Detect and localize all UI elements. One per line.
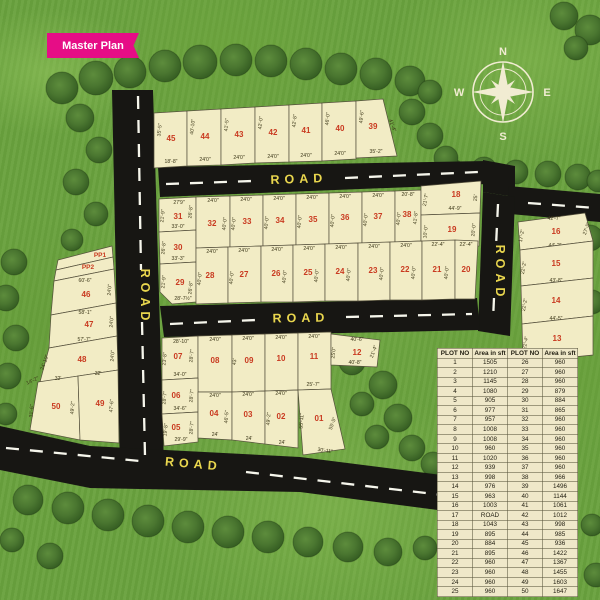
tree <box>564 36 588 60</box>
table-cell: 1012 <box>543 511 578 521</box>
tree <box>369 371 397 399</box>
plot-39: 3949'-6"41'-4"35'-2" <box>356 99 397 158</box>
plot-dimension: 22'-4" <box>432 242 445 248</box>
tree <box>350 392 374 416</box>
plot-number: 04 <box>210 409 219 418</box>
table-cell: 28 <box>508 377 543 387</box>
plot-number: 38 <box>403 210 412 219</box>
table-cell: 1 <box>438 358 473 368</box>
table-cell: 905 <box>473 396 508 406</box>
plot-dimension: 24'0" <box>273 196 284 202</box>
tree <box>535 161 561 187</box>
plot-number: 18 <box>452 190 461 199</box>
road-label: ROAD <box>493 245 507 302</box>
table-cell: 35 <box>508 444 543 454</box>
plot-44: 4440'-10"24'0" <box>187 109 221 166</box>
table-header-row: PLOT NOArea in sftPLOT NOArea in sft <box>438 349 578 359</box>
plot-dimension: 24'0" <box>238 248 249 254</box>
plot-20: 2022'-4" <box>455 240 478 299</box>
table-row: 3114528960 <box>438 377 578 387</box>
plot-43: 4341'-5"24'0" <box>221 107 255 165</box>
plot-dimension: 24'0" <box>368 244 379 250</box>
table-cell: 18 <box>438 520 473 530</box>
plot-31: 3127'9"21'-9"26'-8"33'-0" <box>159 197 196 232</box>
master-plan-canvas: ROADROADROADROADROAD 4535'-5"18'-8"4440'… <box>0 0 600 600</box>
plot-05: 0519'-8"28'-7"29'-9" <box>162 412 198 446</box>
compass-icon: N S W E <box>454 46 551 143</box>
plot-number: 27 <box>240 270 249 279</box>
table-cell: 15 <box>438 491 473 501</box>
table-cell: 43 <box>508 520 543 530</box>
tree <box>399 99 425 125</box>
road-label: ROAD <box>270 171 327 187</box>
table-row: 24960491603 <box>438 577 578 587</box>
plot-number: 33 <box>243 217 252 226</box>
plot-45: 4535'-5"18'-8" <box>154 111 187 168</box>
plot-37: 3724'0"40'-0" <box>362 191 395 243</box>
tree <box>0 285 19 311</box>
plot-dimension: 24'0" <box>308 334 319 340</box>
table-row: 23960481455 <box>438 568 578 578</box>
table-header-cell: PLOT NO <box>508 349 543 359</box>
plot-number: 12 <box>353 348 362 357</box>
plot-number: 41 <box>302 126 311 135</box>
table-cell: 10 <box>438 444 473 454</box>
compass-east-label: E <box>543 87 550 99</box>
tree <box>360 58 392 90</box>
table-row: 8100833960 <box>438 425 578 435</box>
plot-number: 20 <box>462 265 471 274</box>
table-cell: 47 <box>508 558 543 568</box>
road-label: ROAD <box>138 269 152 326</box>
table-cell: 22 <box>438 558 473 568</box>
table-cell: 960 <box>473 577 508 587</box>
plot-number: 45 <box>167 134 176 143</box>
plot-22: 2224'0"40'-0" <box>390 241 422 300</box>
table-cell: 884 <box>473 539 508 549</box>
table-row: 1989544985 <box>438 530 578 540</box>
table-row: 697731865 <box>438 406 578 416</box>
table-cell: 1008 <box>473 434 508 444</box>
plot-number: 42 <box>269 128 278 137</box>
compass-south-label: S <box>499 131 506 143</box>
plot-dimension: 24'0" <box>207 198 218 204</box>
table-cell: 9 <box>438 434 473 444</box>
plot-dimension: 24'0" <box>271 247 282 253</box>
plot-dimension: 24'0" <box>267 154 278 160</box>
table-row: 18104343998 <box>438 520 578 530</box>
table-row: 2088445936 <box>438 539 578 549</box>
plot-49: 4932'47'-6" <box>78 370 119 443</box>
tree <box>0 403 17 425</box>
table-cell: 1003 <box>473 501 508 511</box>
plot-10: 1024'0" <box>265 333 298 391</box>
plot-number: 24 <box>336 267 345 276</box>
table-cell: 960 <box>543 358 578 368</box>
table-cell: 998 <box>473 472 508 482</box>
plot-50: 5032'14'-2"31'-6"49'-2" <box>25 376 80 440</box>
table-row: 1293937960 <box>438 463 578 473</box>
table-cell: 48 <box>508 568 543 578</box>
tree <box>325 53 357 85</box>
table-cell: 960 <box>543 453 578 463</box>
table-cell: 1210 <box>473 368 508 378</box>
table-cell: 1603 <box>543 577 578 587</box>
plot-dimension: 35'-2" <box>370 149 383 155</box>
tree <box>63 169 89 195</box>
table-cell: 960 <box>543 434 578 444</box>
compass-north-label: N <box>499 46 507 58</box>
table-row: 590530884 <box>438 396 578 406</box>
plot-11: 1124'0"25'-7" <box>298 332 331 390</box>
plot-dimension: 33'-0" <box>172 224 185 230</box>
plot-number: 26 <box>272 269 281 278</box>
tree <box>293 527 323 557</box>
tree <box>565 164 591 190</box>
plot-dimension: 29'-9" <box>175 437 188 443</box>
table-cell: 4 <box>438 387 473 397</box>
tree <box>0 528 24 552</box>
table-row: 9100834960 <box>438 434 578 444</box>
table-cell: 29 <box>508 387 543 397</box>
plot-dimension: 20'-8" <box>402 192 415 198</box>
plot-dimension: 33'-3" <box>172 256 185 262</box>
plot-dimension: 30'-11" <box>317 447 333 455</box>
plot-dimension: 24'0" <box>372 193 383 199</box>
table-cell: 20 <box>438 539 473 549</box>
table-row: 4108029879 <box>438 387 578 397</box>
plot-dimension: 43' <box>232 358 239 365</box>
table-cell: 6 <box>438 406 473 416</box>
table-cell: 895 <box>473 549 508 559</box>
table-cell: 30 <box>508 396 543 406</box>
plot-number: 21 <box>433 265 442 274</box>
plot-dimension: 24'0" <box>335 245 346 251</box>
plot-30: 3026'-8"33'-3" <box>159 230 196 264</box>
tree <box>220 44 252 76</box>
plot-number: 39 <box>369 122 378 131</box>
tree <box>399 435 425 461</box>
plot-dimension: 22'-4" <box>460 242 473 248</box>
plot-01: 0155'-11"55'-5"30'-11" <box>298 389 345 455</box>
table-cell: 879 <box>543 387 578 397</box>
plot-28: 2824'0"40'-0" <box>196 247 228 304</box>
table-cell: 865 <box>543 406 578 416</box>
plot-number: 14 <box>552 296 561 305</box>
plot-number: 36 <box>341 213 350 222</box>
tree <box>132 505 164 537</box>
plot-dimension: 44'-9" <box>449 206 462 212</box>
plot-dimension: 24'0" <box>107 284 114 296</box>
tree <box>84 202 108 226</box>
plot-26: 2624'0"40'-0" <box>261 245 293 302</box>
plot-dimension: 40'-8" <box>349 360 362 366</box>
table-cell: 1422 <box>543 549 578 559</box>
plot-dimension: 34'-6" <box>174 406 187 412</box>
table-cell: 1008 <box>473 425 508 435</box>
plot-number: 23 <box>369 266 378 275</box>
plot-dimension: 46'-5" <box>224 410 231 424</box>
tree <box>172 511 204 543</box>
table-cell: 11 <box>438 453 473 463</box>
plot-35: 3524'0"40'-0" <box>296 193 329 245</box>
table-cell: 8 <box>438 425 473 435</box>
table-cell: 960 <box>473 587 508 597</box>
table-cell: 16 <box>438 501 473 511</box>
table-cell: 960 <box>543 463 578 473</box>
table-cell: 34 <box>508 434 543 444</box>
plot-07: 0728'-10"23'-8"28'-7"34'-0" <box>161 336 198 380</box>
table-row: 21895461422 <box>438 549 578 559</box>
table-cell: 1145 <box>473 377 508 387</box>
plot-dimension: 49'-2" <box>70 401 77 415</box>
plot-dimension: 25'-7" <box>307 382 320 388</box>
table-cell: 966 <box>543 472 578 482</box>
table-cell: 3 <box>438 377 473 387</box>
plot-23: 2324'0"40'-0" <box>358 242 390 301</box>
tree <box>183 45 217 79</box>
table-cell: 1496 <box>543 482 578 492</box>
table-cell: 50 <box>508 587 543 597</box>
plot-dimension: 34'-0" <box>174 372 187 378</box>
tree <box>92 499 124 531</box>
table-cell: 985 <box>543 530 578 540</box>
table-cell: 19 <box>438 530 473 540</box>
plot-dimension: 28'-10" <box>173 339 189 345</box>
table-cell: 40 <box>508 491 543 501</box>
plot-number: 10 <box>277 354 286 363</box>
compass-center-dot <box>500 89 506 95</box>
tree <box>290 48 322 80</box>
table-cell: 936 <box>543 539 578 549</box>
tree <box>374 538 402 566</box>
plot-number: 50 <box>52 402 61 411</box>
table-row: 795732960 <box>438 415 578 425</box>
table-cell: 1647 <box>543 587 578 597</box>
plot-06: 0628'-7"28'-7"34'-6" <box>161 378 198 414</box>
plot-dimension: 24'0" <box>242 392 253 398</box>
table-cell: 895 <box>473 530 508 540</box>
tree <box>333 532 363 562</box>
plot-42: 4242'-0"24'0" <box>255 105 289 163</box>
plot-dimension: 24'0" <box>334 151 345 157</box>
table-cell: 960 <box>543 368 578 378</box>
table-row: 14976391496 <box>438 482 578 492</box>
plot-dimension: 42'-7" <box>548 216 561 222</box>
plot-40: 4046'-0"24'0" <box>322 101 356 161</box>
master-plan-title: Master Plan <box>62 40 124 52</box>
table-cell: 957 <box>473 415 508 425</box>
plot-dimension: 25'0" <box>330 347 337 359</box>
plot-dimension: 47'-6" <box>109 399 116 413</box>
plot-area-table-grid: PLOT NOArea in sftPLOT NOArea in sft1150… <box>437 348 578 597</box>
table-cell: 36 <box>508 453 543 463</box>
plot-number: 05 <box>172 423 181 432</box>
tree <box>212 516 244 548</box>
table-cell: 38 <box>508 472 543 482</box>
plot-number: 46 <box>82 290 91 299</box>
table-cell: 46 <box>508 549 543 559</box>
table-cell: 1455 <box>543 568 578 578</box>
tree <box>581 514 600 536</box>
table-cell: 976 <box>473 482 508 492</box>
plot-dimension: 32' <box>95 371 102 377</box>
plot-dimension: 24'0" <box>300 153 311 159</box>
plot-number: 22 <box>401 265 410 274</box>
table-row: 22960471367 <box>438 558 578 568</box>
plot-number: 07 <box>174 352 183 361</box>
tree <box>550 2 578 30</box>
plot-number: 01 <box>315 414 324 423</box>
tree <box>46 72 78 104</box>
table-cell: 960 <box>543 377 578 387</box>
tree <box>252 521 284 553</box>
table-cell: 960 <box>543 415 578 425</box>
plot-number: 40 <box>336 124 345 133</box>
plot-36: 3624'0"40'-0" <box>329 192 362 244</box>
table-cell: 39 <box>508 482 543 492</box>
table-cell: 963 <box>473 491 508 501</box>
plot-number: 25 <box>304 268 313 277</box>
table-cell: 1505 <box>473 358 508 368</box>
tree <box>255 45 287 77</box>
table-row: 15963401144 <box>438 491 578 501</box>
plot-number: 16 <box>552 227 561 236</box>
table-cell: 960 <box>543 444 578 454</box>
table-row: 1150526960 <box>438 358 578 368</box>
plot-dimension: 24' <box>246 436 253 442</box>
plot-dimension: 60'-6" <box>79 278 92 284</box>
table-cell: 32 <box>508 415 543 425</box>
table-cell: 14 <box>438 482 473 492</box>
table-cell: 26 <box>508 358 543 368</box>
table-cell: 7 <box>438 415 473 425</box>
plot-dimension: 24'0" <box>209 393 220 399</box>
plot-dimension: 24'0" <box>339 194 350 200</box>
table-cell: 998 <box>543 520 578 530</box>
table-header-cell: Area in sft <box>473 349 508 359</box>
plot-number: 13 <box>553 334 562 343</box>
plot-dimension: 24'0" <box>240 197 251 203</box>
plot-dimension: 24'0" <box>275 335 286 341</box>
tree <box>413 536 437 560</box>
tree <box>417 123 443 149</box>
plot-34: 3424'0"40'-0" <box>263 194 296 246</box>
plot-dimension: 32' <box>55 376 62 382</box>
plot-03: 0324'0"24' <box>232 391 265 444</box>
plot-dimension: 25' <box>473 194 480 201</box>
tree <box>86 137 112 163</box>
plot-number: 44 <box>201 132 210 141</box>
table-cell: 1061 <box>543 501 578 511</box>
plot-dimension: 55'-11" <box>298 413 305 429</box>
plot-dimension: 27'9" <box>173 200 184 206</box>
table-row: 17ROAD421012 <box>438 511 578 521</box>
table-cell: 27 <box>508 368 543 378</box>
plot-number: 19 <box>448 225 457 234</box>
plot-dimension: 24'0" <box>303 246 314 252</box>
table-header-cell: PLOT NO <box>438 349 473 359</box>
plot-dimension: 24'0" <box>233 155 244 161</box>
plot-dimension: 28'-7½" <box>174 295 191 302</box>
table-cell: 977 <box>473 406 508 416</box>
plot-25: 2524'0"40'-0" <box>293 244 325 302</box>
table-cell: 1144 <box>543 491 578 501</box>
plot-number: 37 <box>374 212 383 221</box>
plot-number: 49 <box>96 399 105 408</box>
plot-number: 48 <box>78 355 87 364</box>
table-cell: 2 <box>438 368 473 378</box>
table-cell: 1020 <box>473 453 508 463</box>
plot-number: 30 <box>174 243 183 252</box>
table-cell: 25 <box>438 587 473 597</box>
table-cell: 37 <box>508 463 543 473</box>
tree <box>418 80 442 104</box>
plot-number: 43 <box>235 130 244 139</box>
plot-dimension: 24'0" <box>109 316 116 328</box>
plot-33: 3324'0"40'-0" <box>230 195 263 247</box>
tree <box>114 56 146 88</box>
table-row: 2121027960 <box>438 368 578 378</box>
plot-dimension: 31'-6" <box>29 404 36 418</box>
tree <box>13 485 43 515</box>
plot-number: 31 <box>174 212 183 221</box>
plot-number: 28 <box>206 271 215 280</box>
plot-dimension: 24'0" <box>206 249 217 255</box>
plot-38: 3820'-8"40'-0"41'-8" <box>395 190 421 242</box>
plot-number: 02 <box>277 412 286 421</box>
plot-number: 29 <box>176 278 185 287</box>
plot-dimension: 49'-2" <box>266 412 273 426</box>
tree <box>79 61 113 95</box>
table-cell: 44 <box>508 530 543 540</box>
table-cell: 24 <box>438 577 473 587</box>
plot-dimension: 18'-8" <box>165 159 178 165</box>
table-cell: 960 <box>473 558 508 568</box>
table-row: 11102036960 <box>438 453 578 463</box>
plot-21: 2122'-4"40'-0" <box>422 240 455 300</box>
table-cell: 884 <box>543 396 578 406</box>
table-cell: 17 <box>438 511 473 521</box>
plot-27: 2724'0"40'-0" <box>228 246 261 303</box>
table-cell: 939 <box>473 463 508 473</box>
plot-number: 35 <box>309 215 318 224</box>
plot-dimension: 24'0" <box>110 350 117 362</box>
tree <box>52 492 84 524</box>
plot-number: 06 <box>172 391 181 400</box>
table-cell: 23 <box>438 568 473 578</box>
table-header-cell: Area in sft <box>543 349 578 359</box>
plot-area-table: PLOT NOArea in sftPLOT NOArea in sft1150… <box>437 348 578 597</box>
plot-18: 1821'-7"44'-9"25' <box>421 181 481 215</box>
plot-number: 09 <box>245 356 254 365</box>
table-cell: 45 <box>508 539 543 549</box>
table-cell: 960 <box>473 444 508 454</box>
plot-dimension: 24'0" <box>242 336 253 342</box>
table-cell: 960 <box>473 568 508 578</box>
plot-04: 0424'0"46'-5"24' <box>198 392 232 440</box>
table-cell: 12 <box>438 463 473 473</box>
plot-dimension: 40'-6" <box>351 337 364 343</box>
table-cell: 21 <box>438 549 473 559</box>
plot-08: 0824'0" <box>198 335 232 392</box>
tree <box>584 563 600 587</box>
plot-29: 2921'-9"26'-8"28'-7½" <box>160 262 196 304</box>
plot-dimension: 24'0" <box>306 195 317 201</box>
table-row: 25960501647 <box>438 587 578 597</box>
plot-dimension: 58'-1" <box>79 310 92 316</box>
plot-02: 0224'0"49'-2"24' <box>265 390 298 448</box>
